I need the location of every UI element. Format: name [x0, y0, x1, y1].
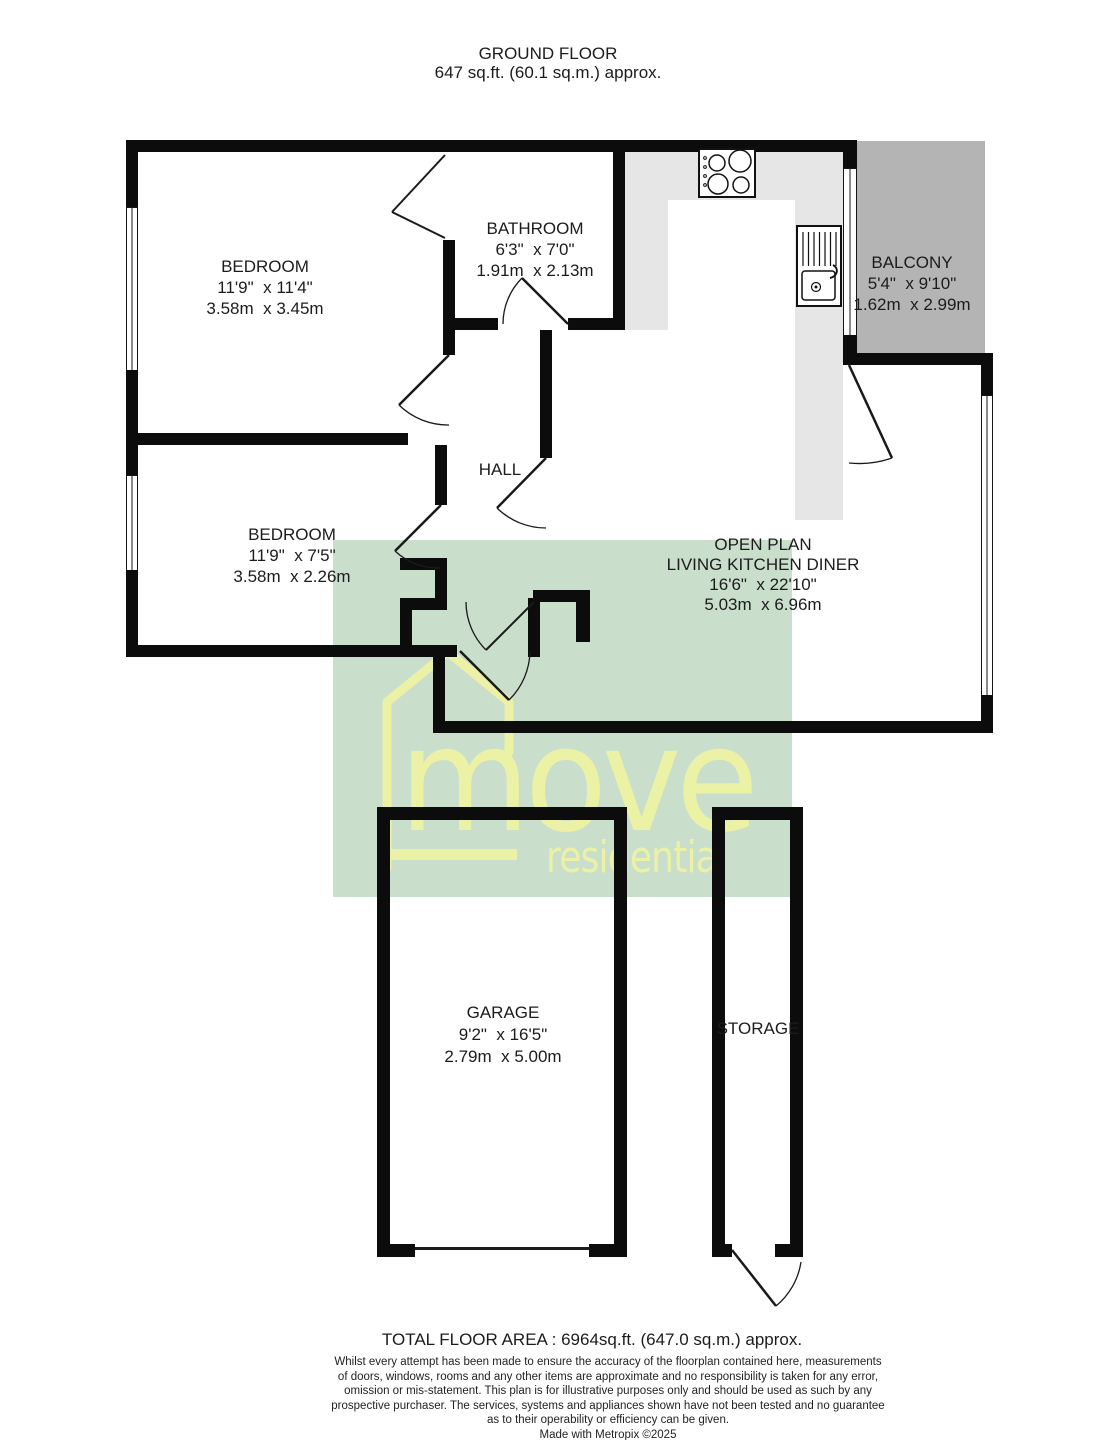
- door-lines: [392, 155, 892, 1306]
- balcony-door-leaf: [849, 365, 892, 458]
- balcony-dims-imperial: 5'4" x 9'10": [868, 273, 957, 294]
- bedroom2-dims-metric: 3.58m x 2.26m: [233, 566, 350, 587]
- balcony-dims-metric: 1.62m x 2.99m: [853, 294, 970, 315]
- floorplan-page: move residential: [0, 0, 1118, 1440]
- plan-title-area: 647 sq.ft. (60.1 sq.m.) approx.: [435, 62, 662, 83]
- openplan-dims-imperial: 16'6" x 22'10": [709, 574, 816, 595]
- disclaimer-line-1: Whilst every attempt has been made to en…: [334, 1355, 881, 1370]
- disclaimer-line-4: prospective purchaser. The services, sys…: [331, 1399, 884, 1414]
- garage-label: GARAGE: [467, 1002, 540, 1023]
- bathroom-label: BATHROOM: [487, 218, 584, 239]
- inner-entry-door-leaf: [486, 602, 534, 650]
- metropix-credit: Made with Metropix ©2025: [540, 1428, 677, 1440]
- disclaimer-line-2: of doors, windows, rooms and any other i…: [338, 1370, 878, 1385]
- front-door-leaf: [460, 651, 509, 700]
- front-door-arc: [509, 651, 530, 700]
- total-floor-area: TOTAL FLOOR AREA : 6964sq.ft. (647.0 sq.…: [382, 1330, 802, 1350]
- bedroom1-label: BEDROOM: [221, 256, 309, 277]
- disclaimer-line-5: as to their operability or efficiency ca…: [487, 1413, 729, 1428]
- bathroom-dims-metric: 1.91m x 2.13m: [476, 260, 593, 281]
- bedroom1-door-arc: [399, 405, 449, 425]
- disclaimer-line-3: omission or mis-statement. This plan is …: [344, 1384, 872, 1399]
- bedroom1-door-leaf: [399, 355, 449, 405]
- bathroom-door-arc: [503, 278, 522, 324]
- bedroom2-dims-imperial: 11'9" x 7'5": [248, 545, 335, 566]
- hall-label: HALL: [479, 459, 522, 480]
- openplan-dims-metric: 5.03m x 6.96m: [704, 594, 821, 615]
- bedroom2-door-leaf: [395, 505, 441, 551]
- balcony-label: BALCONY: [871, 252, 952, 273]
- hob-icon: [699, 149, 755, 197]
- inner-entry-door-arc: [466, 602, 486, 650]
- bedroom1-top-door-leaf-b: [392, 212, 445, 238]
- bathroom-dims-imperial: 6'3" x 7'0": [495, 239, 574, 260]
- bedroom1-dims-imperial: 11'9" x 11'4": [217, 277, 312, 298]
- bedroom1-dims-metric: 3.58m x 3.45m: [206, 298, 323, 319]
- bedroom1-top-door-leaf-a: [392, 155, 445, 212]
- bedroom2-label: BEDROOM: [248, 524, 336, 545]
- garage-dims-metric: 2.79m x 5.00m: [444, 1046, 561, 1067]
- openplan-label-line1: OPEN PLAN: [714, 534, 811, 555]
- hall-living-door-arc: [497, 508, 546, 528]
- garage-dims-imperial: 9'2" x 16'5": [459, 1024, 548, 1045]
- doors-and-fixtures: [0, 0, 1118, 1440]
- bedroom2-door-arc: [395, 551, 441, 568]
- storage-label: STORAGE: [717, 1018, 800, 1039]
- sink-icon: [797, 226, 841, 306]
- storage-door-leaf: [732, 1250, 776, 1306]
- plan-title: GROUND FLOOR: [479, 43, 618, 64]
- storage-door-arc: [776, 1262, 801, 1306]
- bathroom-door-leaf: [522, 278, 568, 324]
- balcony-door-arc: [849, 458, 892, 464]
- openplan-label-line2: LIVING KITCHEN DINER: [667, 554, 860, 575]
